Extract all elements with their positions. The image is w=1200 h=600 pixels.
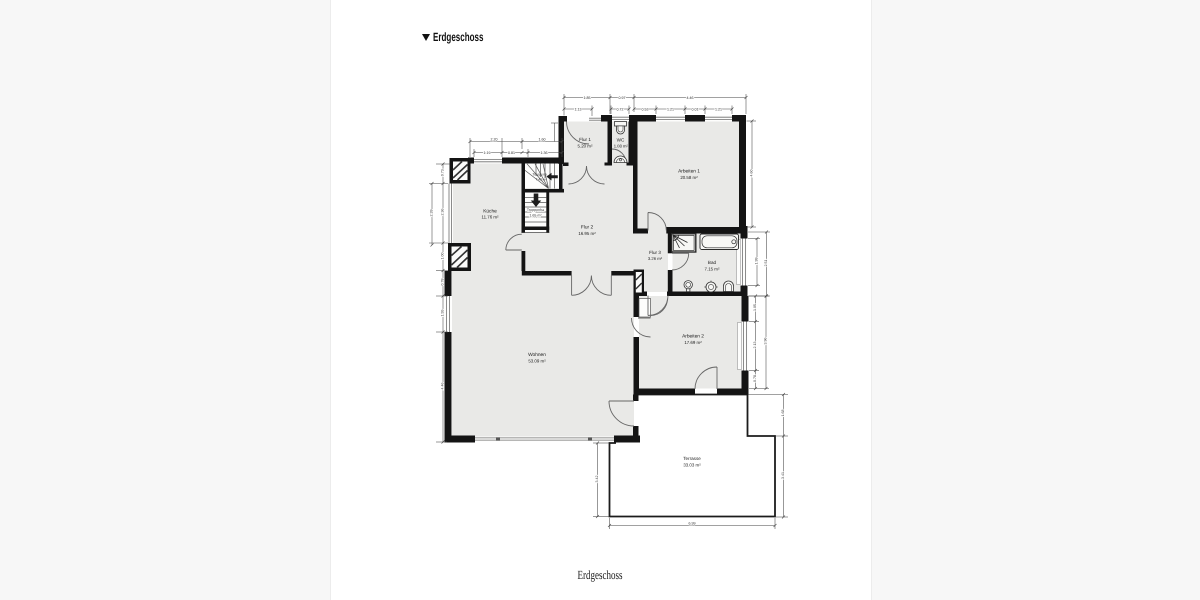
svg-text:3.42: 3.42 (595, 476, 599, 483)
svg-text:3.41: 3.41 (781, 472, 785, 479)
svg-text:Treppenha: Treppenha (527, 208, 544, 212)
svg-text:Terrasse: Terrasse (683, 456, 701, 461)
svg-text:5.20 m²: 5.20 m² (578, 144, 593, 149)
svg-text:11.76 m²: 11.76 m² (481, 215, 499, 220)
svg-text:4.46: 4.46 (440, 383, 444, 390)
svg-text:17.69 m²: 17.69 m² (684, 340, 702, 345)
svg-text:0.72: 0.72 (617, 107, 624, 111)
svg-text:1.55: 1.55 (440, 310, 444, 317)
svg-text:Flur 2: Flur 2 (581, 225, 594, 231)
svg-text:2.36: 2.36 (440, 209, 444, 216)
svg-text:0.78: 0.78 (440, 279, 444, 286)
svg-text:Arbeiten 2: Arbeiten 2 (682, 334, 704, 340)
svg-text:0.53: 0.53 (642, 107, 649, 111)
svg-text:3.26 m²: 3.26 m² (648, 256, 663, 261)
svg-text:7.15 m²: 7.15 m² (705, 267, 720, 272)
svg-text:16.95 m²: 16.95 m² (578, 231, 596, 236)
svg-text:53.09 m²: 53.09 m² (528, 359, 546, 364)
svg-text:1.13: 1.13 (575, 107, 582, 111)
svg-text:WC: WC (617, 138, 625, 143)
svg-text:20.58 m²: 20.58 m² (680, 175, 698, 180)
svg-text:0.97: 0.97 (619, 96, 626, 100)
svg-text:4.46: 4.46 (687, 96, 694, 100)
svg-text:1.65 m²: 1.65 m² (529, 214, 542, 218)
svg-text:4.60: 4.60 (749, 170, 753, 177)
svg-text:1.36: 1.36 (541, 151, 548, 155)
svg-text:3.96: 3.96 (763, 338, 767, 345)
svg-text:1.85: 1.85 (584, 96, 591, 100)
svg-text:0.01: 0.01 (692, 107, 699, 111)
svg-text:1.99: 1.99 (754, 258, 758, 265)
svg-text:2.51: 2.51 (764, 260, 768, 267)
svg-text:6.99: 6.99 (689, 521, 696, 525)
svg-text:Treppenh.: Treppenh. (532, 173, 547, 177)
svg-text:2.20: 2.20 (491, 137, 498, 141)
svg-text:Wohnen: Wohnen (528, 352, 546, 358)
svg-text:33.03 m²: 33.03 m² (683, 463, 701, 468)
svg-text:2.39: 2.39 (429, 210, 433, 217)
svg-text:1.05: 1.05 (753, 304, 757, 311)
svg-text:7.43 m²: 7.43 m² (536, 178, 547, 182)
svg-text:1.00: 1.00 (440, 253, 444, 260)
svg-text:Flur 3: Flur 3 (649, 250, 661, 255)
svg-text:1.68: 1.68 (781, 410, 785, 417)
svg-text:1.19: 1.19 (484, 151, 491, 155)
svg-text:1.21: 1.21 (667, 107, 674, 111)
svg-text:2.13: 2.13 (753, 342, 757, 349)
svg-text:Flur 1: Flur 1 (579, 137, 591, 142)
svg-text:1.60: 1.60 (539, 137, 546, 141)
svg-text:1.08 m²: 1.08 m² (614, 144, 629, 149)
svg-text:0.78: 0.78 (753, 375, 757, 382)
svg-text:1.21: 1.21 (715, 107, 722, 111)
svg-text:Arbeiten 1: Arbeiten 1 (678, 169, 700, 175)
svg-text:0.81: 0.81 (508, 151, 515, 155)
svg-text:Bad: Bad (708, 260, 717, 265)
svg-text:0.73: 0.73 (440, 169, 444, 176)
